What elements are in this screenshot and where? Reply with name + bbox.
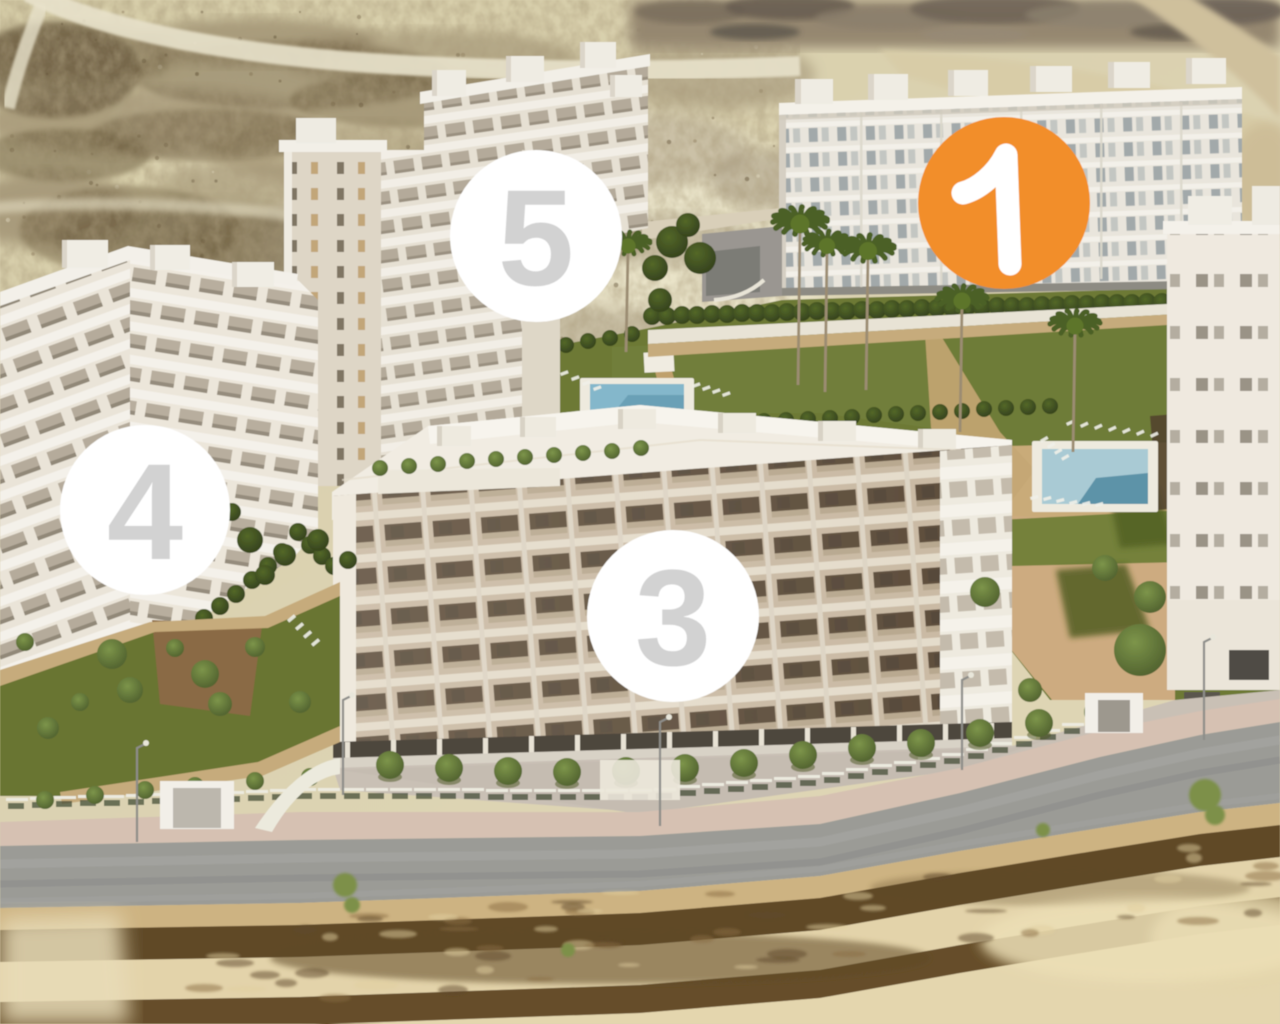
svg-text:4: 4 [107,436,183,589]
svg-text:3: 3 [635,542,711,695]
svg-text:5: 5 [498,162,574,315]
